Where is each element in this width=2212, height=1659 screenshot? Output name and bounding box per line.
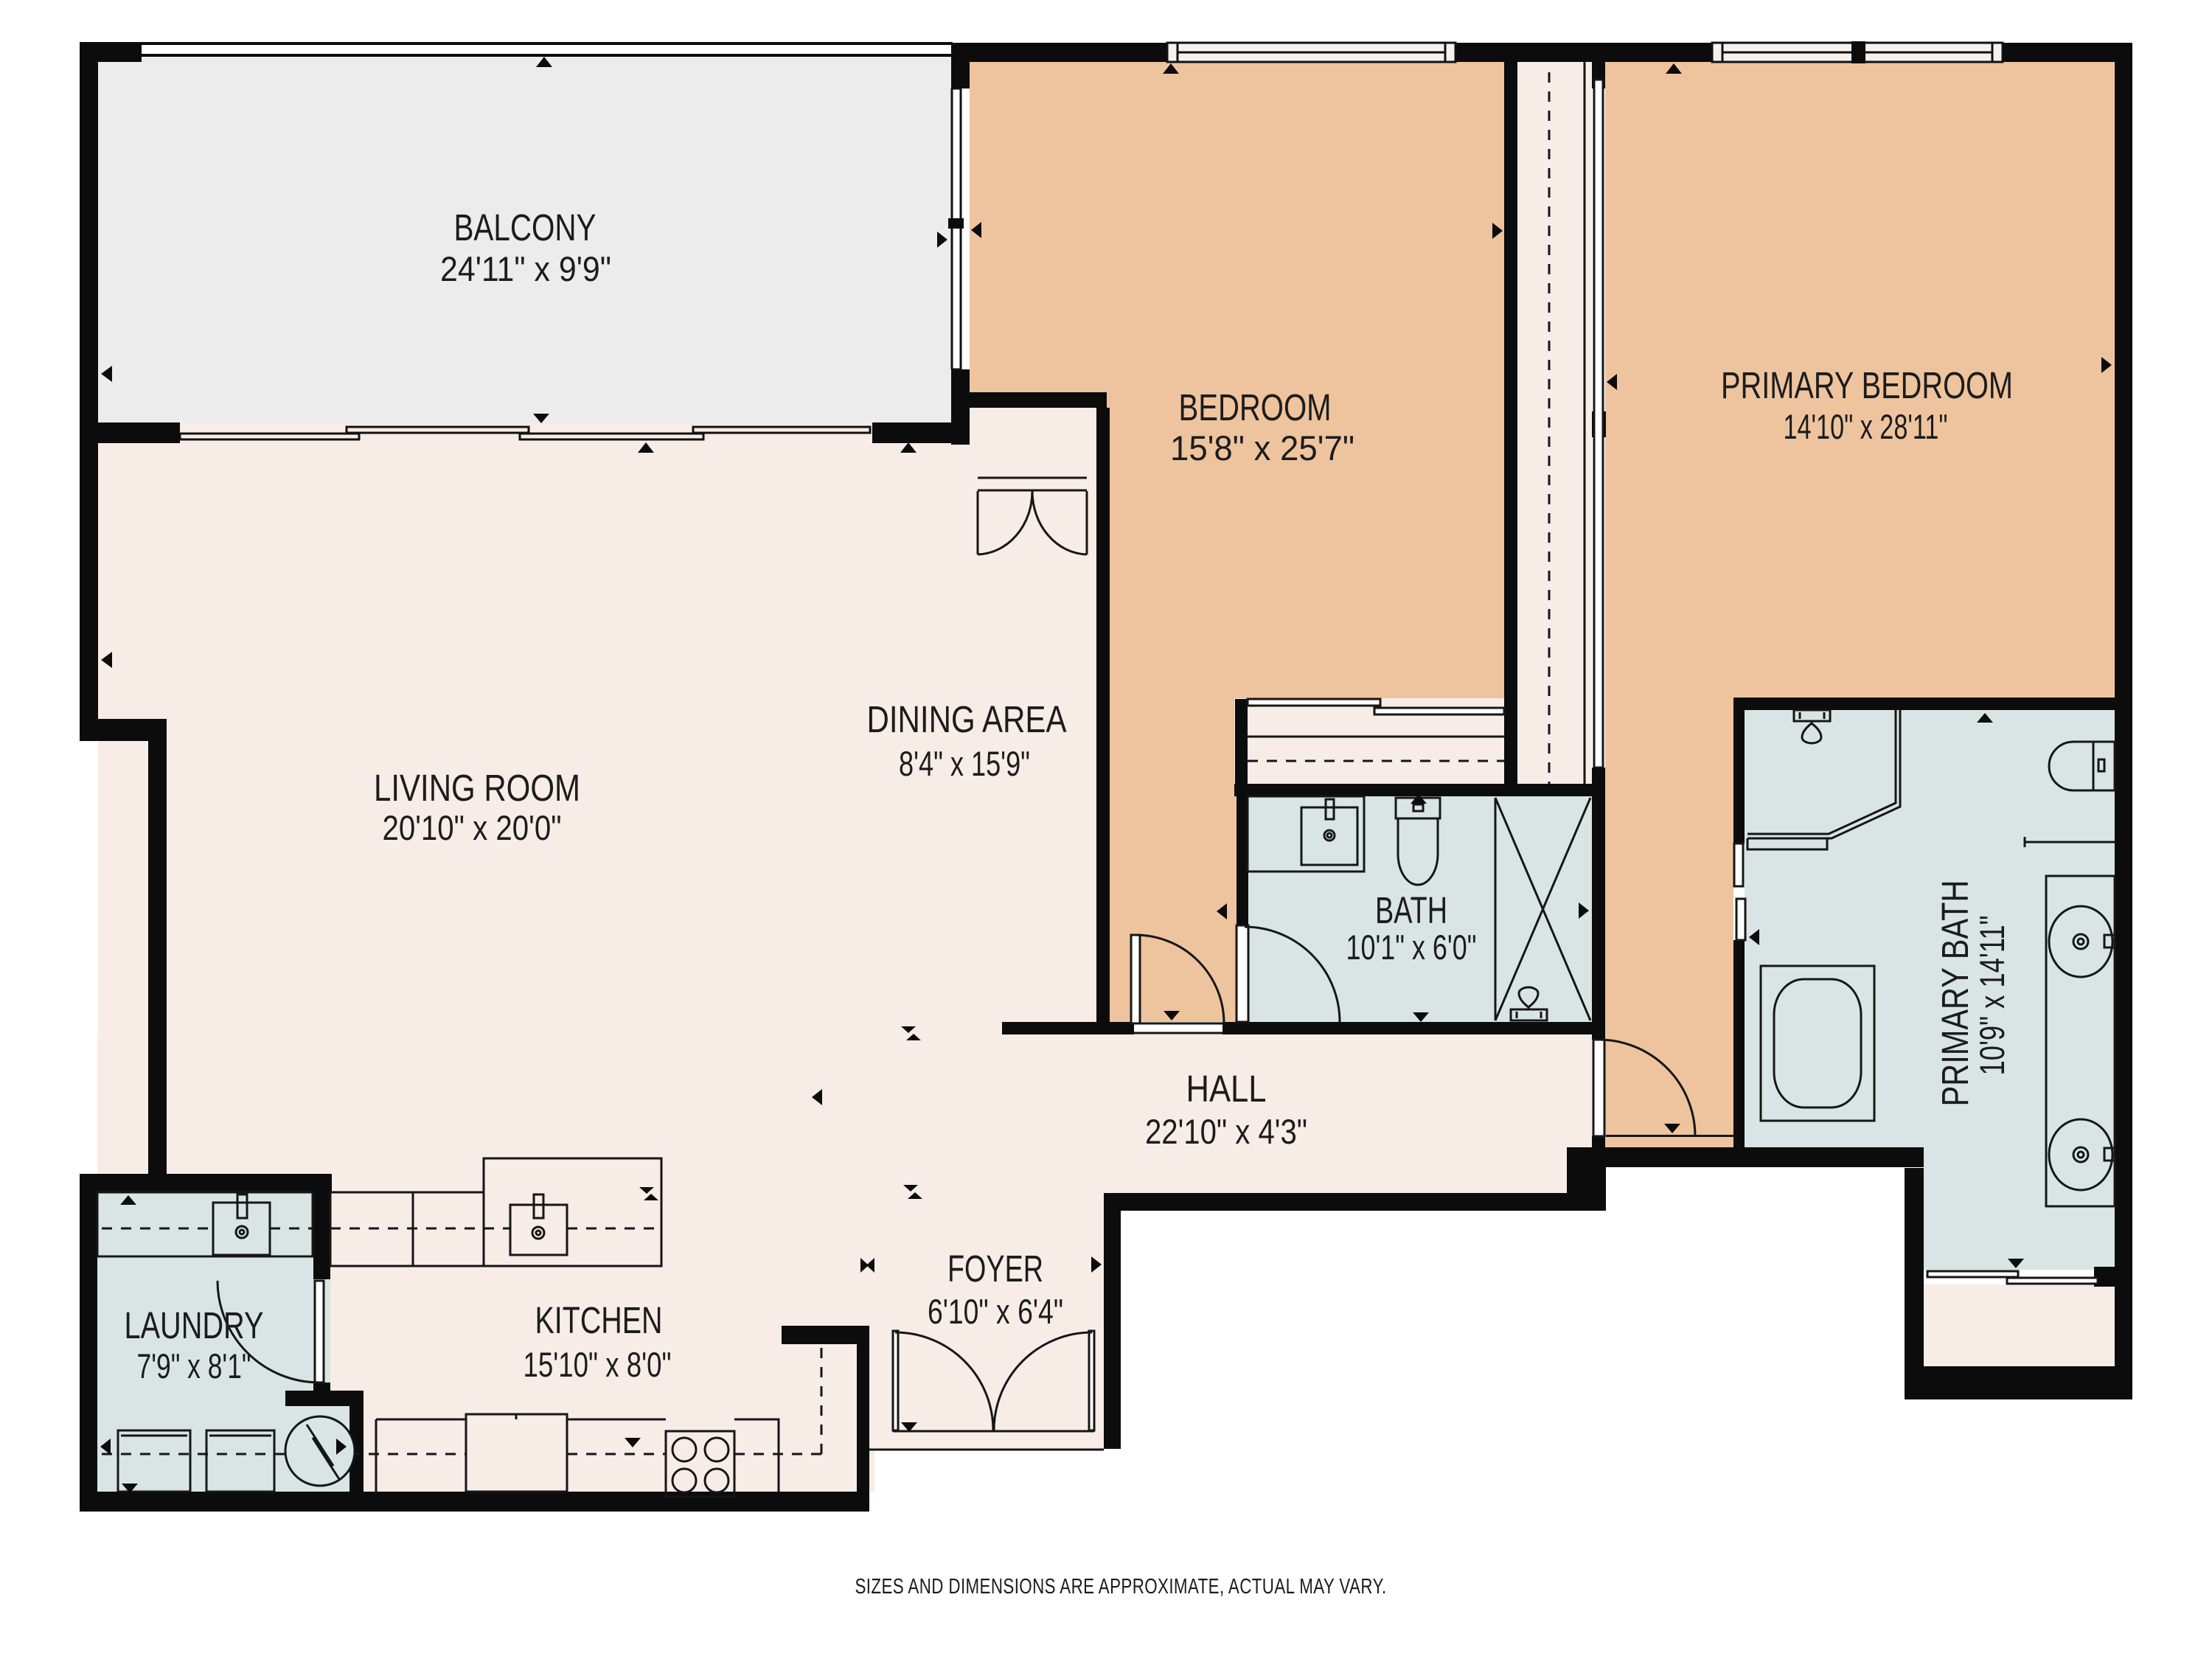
svg-text:15'10" x 8'0": 15'10" x 8'0" [524, 1345, 672, 1384]
svg-text:PRIMARY BEDROOM: PRIMARY BEDROOM [1721, 364, 2013, 406]
svg-text:10'1" x 6'0": 10'1" x 6'0" [1346, 928, 1477, 967]
svg-text:BATH: BATH [1375, 889, 1447, 931]
svg-text:22'10" x 4'3": 22'10" x 4'3" [1145, 1112, 1307, 1151]
svg-text:8'4" x 15'9": 8'4" x 15'9" [899, 744, 1030, 783]
svg-text:HALL: HALL [1186, 1068, 1267, 1110]
svg-text:LAUNDRY: LAUNDRY [125, 1304, 264, 1346]
svg-text:LIVING ROOM: LIVING ROOM [374, 767, 580, 809]
svg-text:7'9" x 8'1": 7'9" x 8'1" [137, 1346, 251, 1385]
svg-text:SIZES AND DIMENSIONS ARE APPRO: SIZES AND DIMENSIONS ARE APPROXIMATE, AC… [855, 1575, 1387, 1599]
svg-text:BEDROOM: BEDROOM [1179, 386, 1332, 428]
svg-text:FOYER: FOYER [947, 1248, 1043, 1290]
svg-text:14'10" x 28'11": 14'10" x 28'11" [1784, 407, 1948, 446]
svg-text:BALCONY: BALCONY [454, 206, 597, 248]
svg-text:20'10" x 20'0": 20'10" x 20'0" [383, 808, 562, 847]
svg-text:6'10" x 6'4": 6'10" x 6'4" [928, 1292, 1063, 1331]
svg-text:KITCHEN: KITCHEN [535, 1299, 663, 1341]
svg-text:15'8" x 25'7": 15'8" x 25'7" [1170, 428, 1354, 467]
svg-text:PRIMARY BATH: PRIMARY BATH [1934, 880, 1976, 1107]
svg-text:DINING AREA: DINING AREA [867, 698, 1067, 740]
svg-text:24'11" x 9'9": 24'11" x 9'9" [440, 249, 611, 288]
svg-text:10'9" x 14'11": 10'9" x 14'11" [1972, 916, 2011, 1076]
